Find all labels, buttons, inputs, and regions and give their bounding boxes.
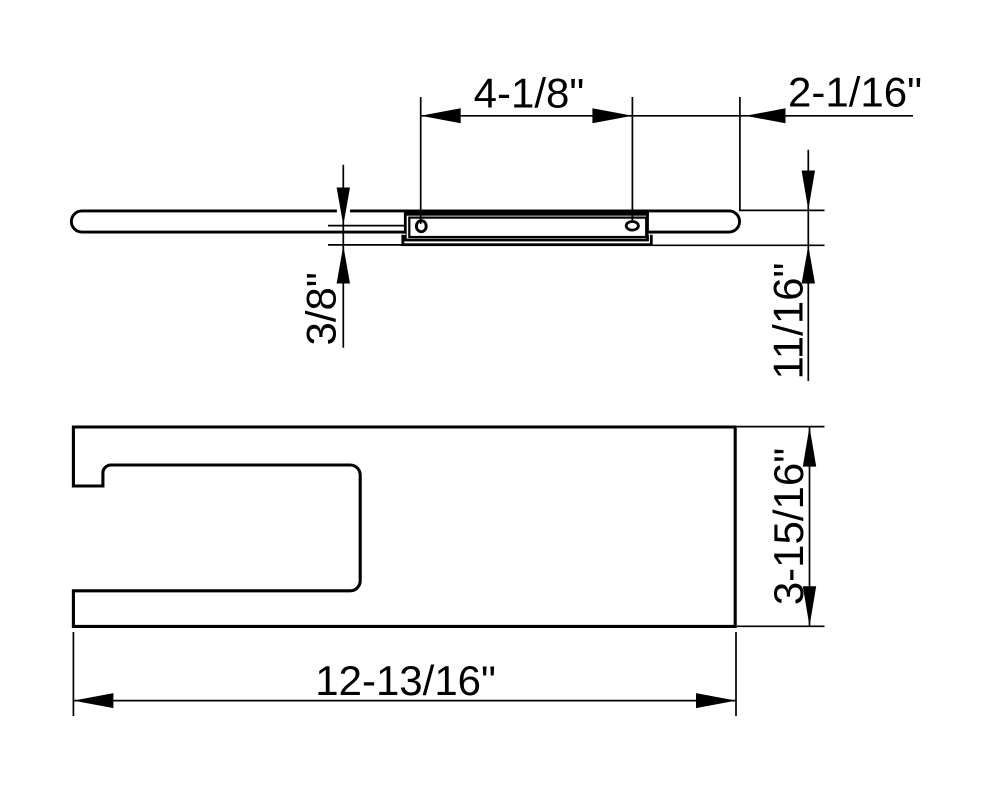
svg-text:12-13/16": 12-13/16" <box>315 657 496 704</box>
svg-text:3/8": 3/8" <box>298 272 345 345</box>
svg-text:4-1/8": 4-1/8" <box>474 70 585 117</box>
svg-text:11/16": 11/16" <box>765 263 812 380</box>
svg-text:3-15/16": 3-15/16" <box>765 448 812 605</box>
svg-text:2-1/16": 2-1/16" <box>788 69 922 116</box>
